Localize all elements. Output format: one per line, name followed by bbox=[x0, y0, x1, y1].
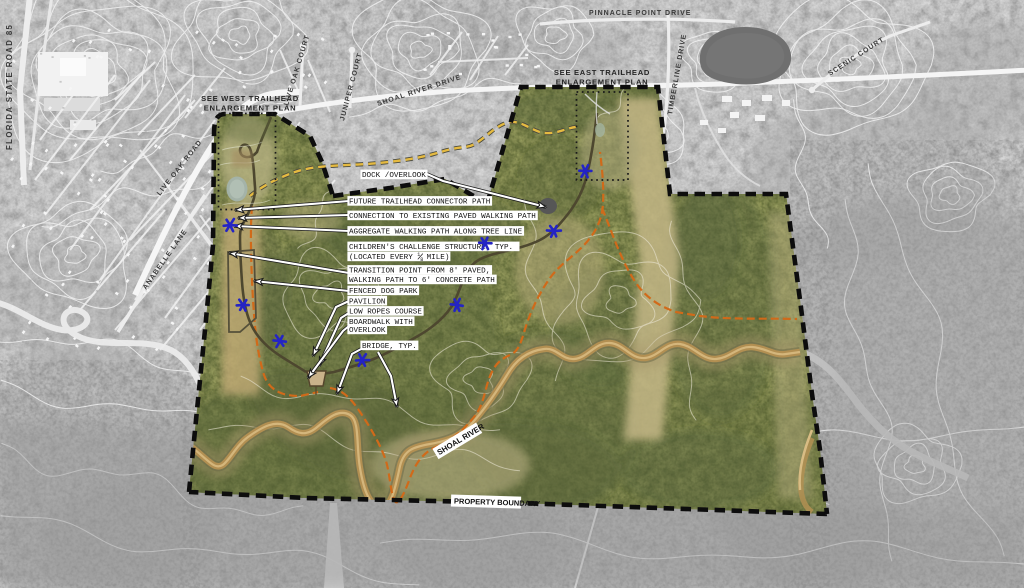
svg-text:OVERLOOK: OVERLOOK bbox=[349, 327, 386, 335]
svg-text:FENCED DOG PARK: FENCED DOG PARK bbox=[349, 288, 418, 296]
svg-text:WALKING PATH TO 6' CONCRETE PA: WALKING PATH TO 6' CONCRETE PATH bbox=[349, 277, 495, 285]
svg-text:FUTURE TRAILHEAD CONNECTOR PAT: FUTURE TRAILHEAD CONNECTOR PATH bbox=[349, 199, 490, 207]
svg-text:DOCK /OVERLOOK: DOCK /OVERLOOK bbox=[362, 172, 426, 180]
svg-text:BRIDGE, TYP.: BRIDGE, TYP. bbox=[362, 343, 417, 351]
svg-text:CONNECTION TO EXISTING PAVED W: CONNECTION TO EXISTING PAVED WALKING PAT… bbox=[349, 213, 536, 221]
svg-text:PINNACLE POINT DRIVE: PINNACLE POINT DRIVE bbox=[589, 10, 691, 17]
svg-text:ENLARGEMENT PLAN: ENLARGEMENT PLAN bbox=[556, 78, 649, 87]
svg-text:8: 8 bbox=[420, 257, 423, 263]
svg-text:AGGREGATE WALKING PATH ALONG T: AGGREGATE WALKING PATH ALONG TREE LINE bbox=[349, 229, 523, 237]
svg-text:SEE EAST TRAILHEAD: SEE EAST TRAILHEAD bbox=[554, 68, 650, 77]
svg-text:MILE): MILE) bbox=[427, 254, 450, 262]
svg-text:FLORIDA STATE ROAD 85: FLORIDA STATE ROAD 85 bbox=[5, 24, 14, 150]
svg-text:TRANSITION POINT FROM 8' PAVED: TRANSITION POINT FROM 8' PAVED, bbox=[349, 268, 490, 276]
svg-text:LOW ROPES COURSE: LOW ROPES COURSE bbox=[349, 309, 422, 317]
svg-text:(LOCATED EVERY: (LOCATED EVERY bbox=[349, 254, 413, 262]
svg-text:PAVILION: PAVILION bbox=[349, 298, 385, 306]
